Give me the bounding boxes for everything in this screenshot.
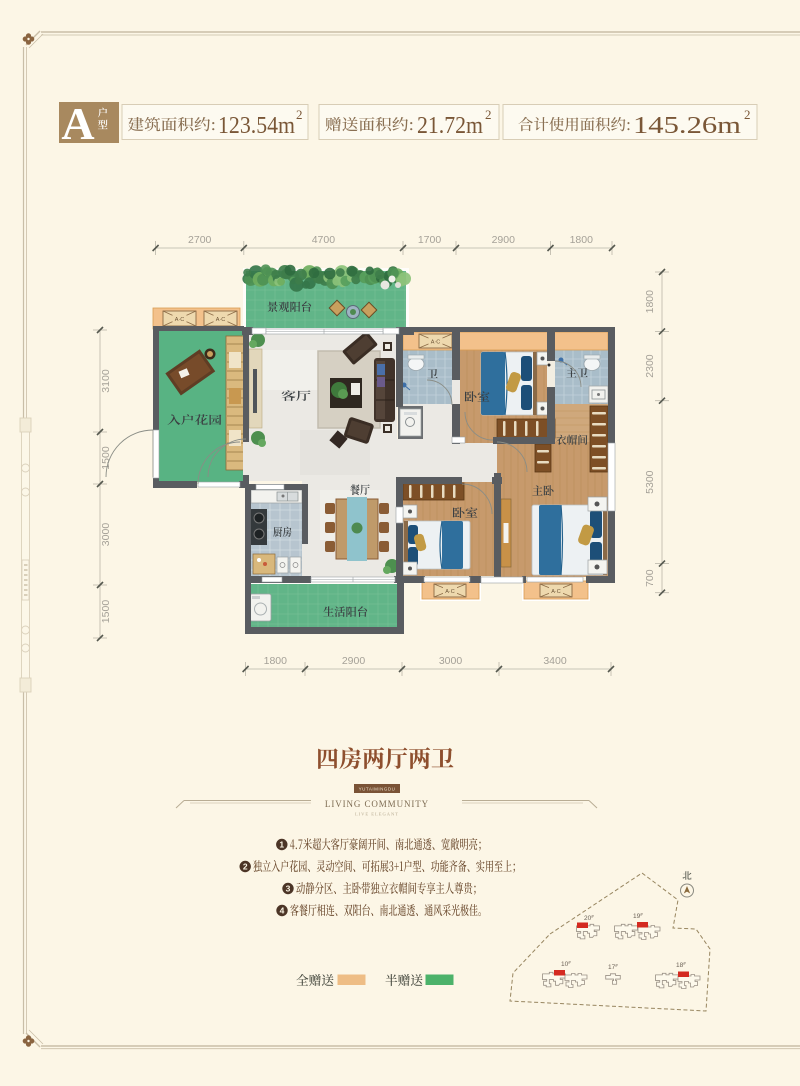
- svg-text:1800: 1800: [264, 655, 288, 667]
- svg-text:2: 2: [485, 107, 492, 122]
- svg-text:2: 2: [296, 107, 303, 122]
- svg-text:A·C: A·C: [175, 317, 185, 323]
- svg-text:A·C: A·C: [445, 589, 455, 595]
- svg-text:1800: 1800: [644, 290, 656, 314]
- svg-text:123.54m: 123.54m: [218, 113, 295, 139]
- svg-text:2300: 2300: [644, 354, 656, 378]
- svg-text:YUTAIMINGDU: YUTAIMINGDU: [359, 787, 396, 792]
- svg-text:2: 2: [744, 107, 751, 122]
- svg-text:2900: 2900: [342, 655, 366, 667]
- svg-text:A·C: A·C: [431, 340, 441, 346]
- svg-text:3400: 3400: [543, 655, 567, 667]
- svg-text:1500: 1500: [100, 600, 112, 624]
- svg-text:LIVING COMMUNITY: LIVING COMMUNITY: [325, 799, 429, 809]
- svg-text:3000: 3000: [439, 655, 463, 667]
- svg-text:1800: 1800: [570, 234, 594, 246]
- svg-text:1: 1: [279, 840, 284, 850]
- svg-text:4: 4: [280, 906, 285, 916]
- svg-text:5300: 5300: [644, 470, 656, 494]
- svg-text:3: 3: [286, 884, 291, 894]
- svg-text:4700: 4700: [312, 234, 336, 246]
- svg-text:A·C: A·C: [551, 589, 561, 595]
- svg-text:700: 700: [644, 569, 656, 587]
- svg-text:A·C: A·C: [216, 317, 226, 323]
- svg-text:1700: 1700: [418, 234, 442, 246]
- svg-text:LIVE ELEGANT: LIVE ELEGANT: [355, 812, 399, 817]
- svg-text:21.72m: 21.72m: [417, 113, 483, 139]
- svg-text:145.26m: 145.26m: [633, 113, 741, 139]
- svg-text:2900: 2900: [492, 234, 516, 246]
- svg-text:A: A: [61, 98, 94, 149]
- svg-text:2700: 2700: [188, 234, 212, 246]
- svg-text:3000: 3000: [100, 523, 112, 547]
- svg-text:2: 2: [243, 862, 248, 872]
- svg-text:3100: 3100: [100, 369, 112, 393]
